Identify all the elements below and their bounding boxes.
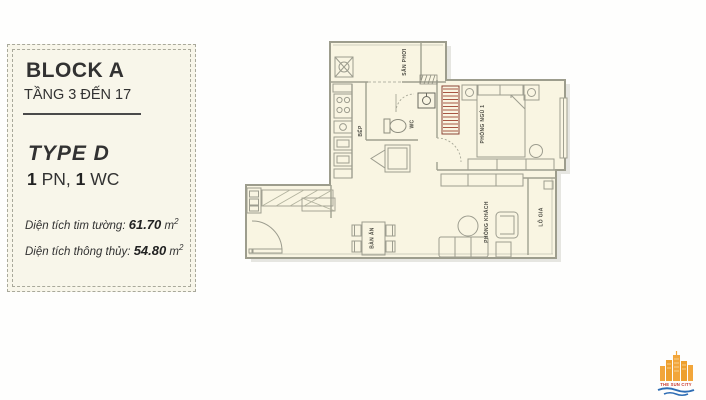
room-label-kitchen: BẾP — [357, 125, 364, 137]
room-label-living: PHÒNG KHÁCH — [482, 201, 490, 243]
room-label-laundry: SÂN PHƠI — [401, 48, 408, 76]
wardrobe — [442, 86, 459, 134]
room-label-wc: WC — [410, 119, 416, 128]
brochure-page: BLOCK A TẦNG 3 ĐẾN 17 TYPE D 1 PN, 1 WC … — [0, 0, 706, 400]
room-label-bedroom: PHÒNG NGỦ 1 — [478, 105, 486, 144]
room-label-balcony: LÔ GIA — [537, 207, 545, 226]
logo-text: THE SUN CITY — [660, 382, 691, 387]
developer-logo: THE SUN CITY — [650, 350, 702, 398]
logo-waves-icon — [658, 388, 694, 395]
floor-plan: SÂN PHƠI BẾP W — [0, 0, 706, 400]
bedroom-window — [560, 98, 567, 158]
room-label-dining: BÀN ĂN — [369, 227, 376, 249]
logo-buildings-icon — [660, 351, 693, 381]
